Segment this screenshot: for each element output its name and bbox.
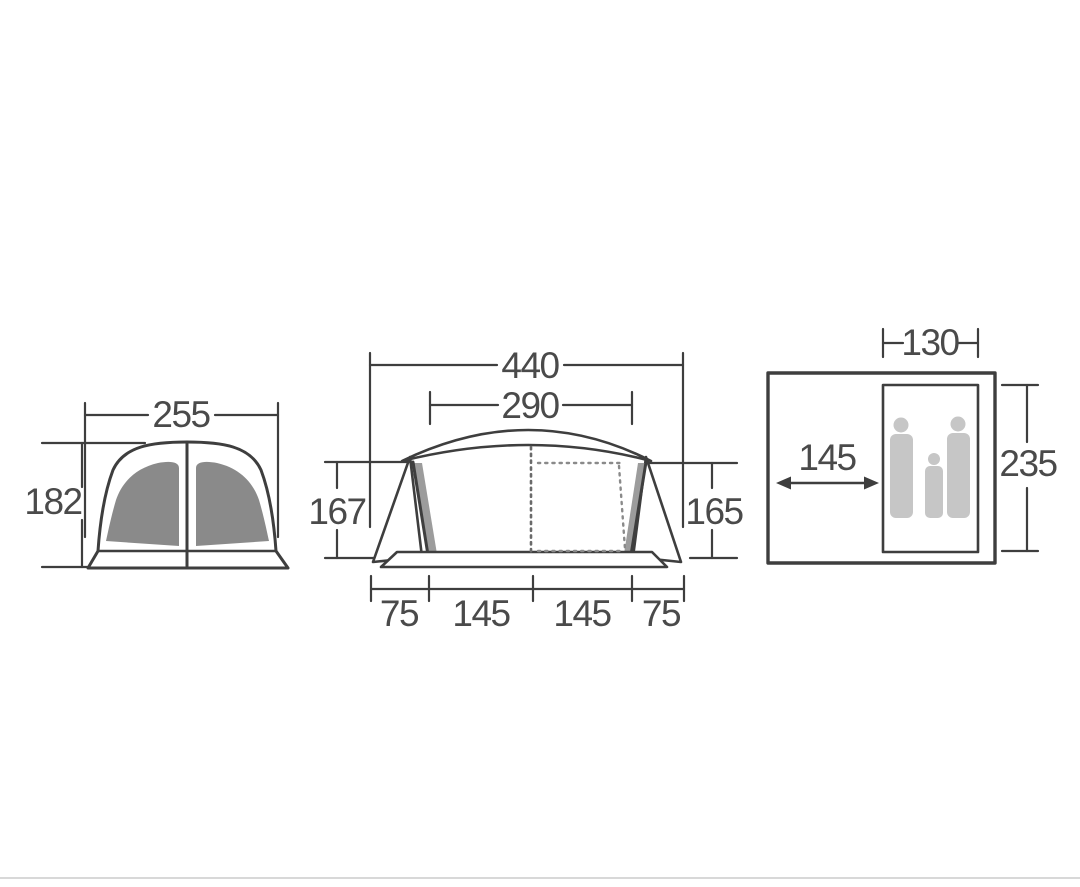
base-segment-label-2: 145 xyxy=(452,593,510,634)
plan-living-depth-label: 145 xyxy=(798,437,856,478)
bottom-divider xyxy=(0,877,1080,879)
roof-canopy xyxy=(402,430,651,461)
diagram-canvas: 255 182 xyxy=(0,0,1080,887)
base-segment-label-3: 145 xyxy=(553,593,611,634)
front-view: 255 182 xyxy=(24,394,288,568)
base-segment-label-1: 75 xyxy=(380,593,419,634)
groundsheet-bar xyxy=(381,552,667,567)
side-right-height-label: 165 xyxy=(685,491,743,532)
floor-plan: 130 145 235 xyxy=(768,322,1058,563)
side-tent xyxy=(373,430,681,567)
base-segment-label-4: 75 xyxy=(642,593,681,634)
plan-bedroom-width-label: 130 xyxy=(901,322,959,363)
side-left-height-label: 167 xyxy=(308,491,365,532)
side-overall-width-label: 440 xyxy=(501,345,559,386)
front-height-dimension-label: 182 xyxy=(24,481,81,522)
side-inner-width-label: 290 xyxy=(501,385,559,426)
side-view: 440 290 167 xyxy=(308,345,743,634)
front-width-dimension-label: 255 xyxy=(152,394,210,435)
inner-tent-dotted-outline xyxy=(538,463,625,551)
front-tent xyxy=(88,442,288,568)
tent-spec-diagram: 255 182 xyxy=(0,0,1080,887)
plan-bedroom-depth-label: 235 xyxy=(999,443,1057,484)
